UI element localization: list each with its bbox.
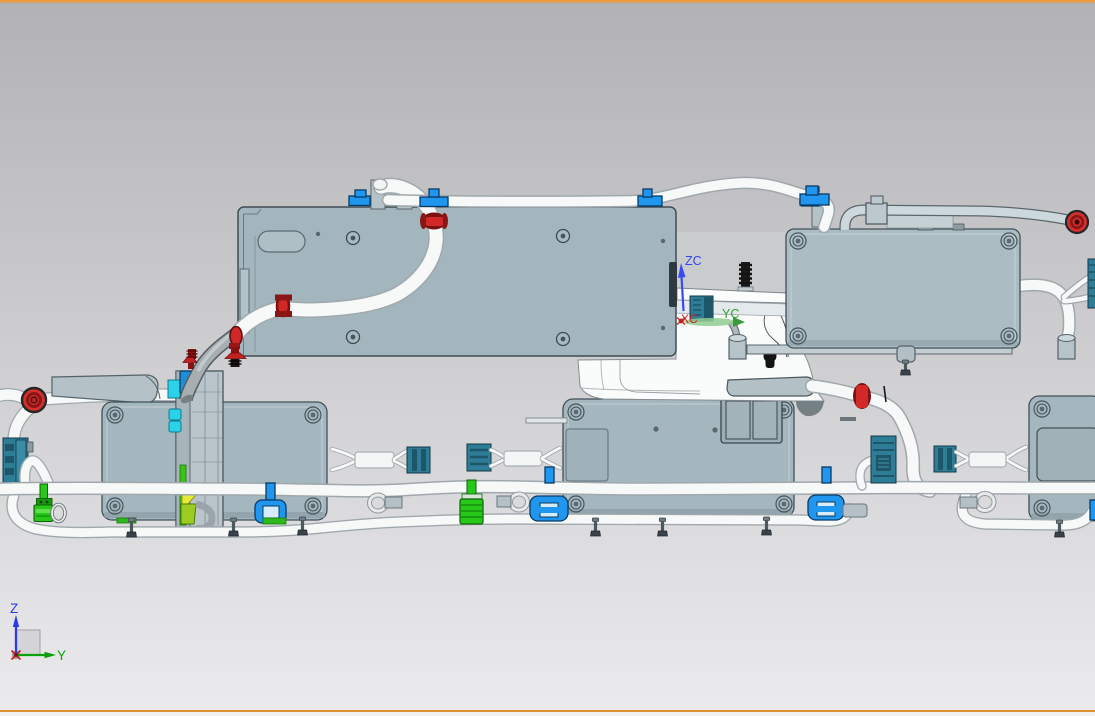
svg-text:Y: Y [57, 648, 66, 663]
svg-text:XC: XC [681, 312, 698, 326]
svg-text:Z: Z [10, 601, 18, 616]
svg-text:YC: YC [722, 307, 739, 321]
svg-text:ZC: ZC [685, 254, 702, 268]
